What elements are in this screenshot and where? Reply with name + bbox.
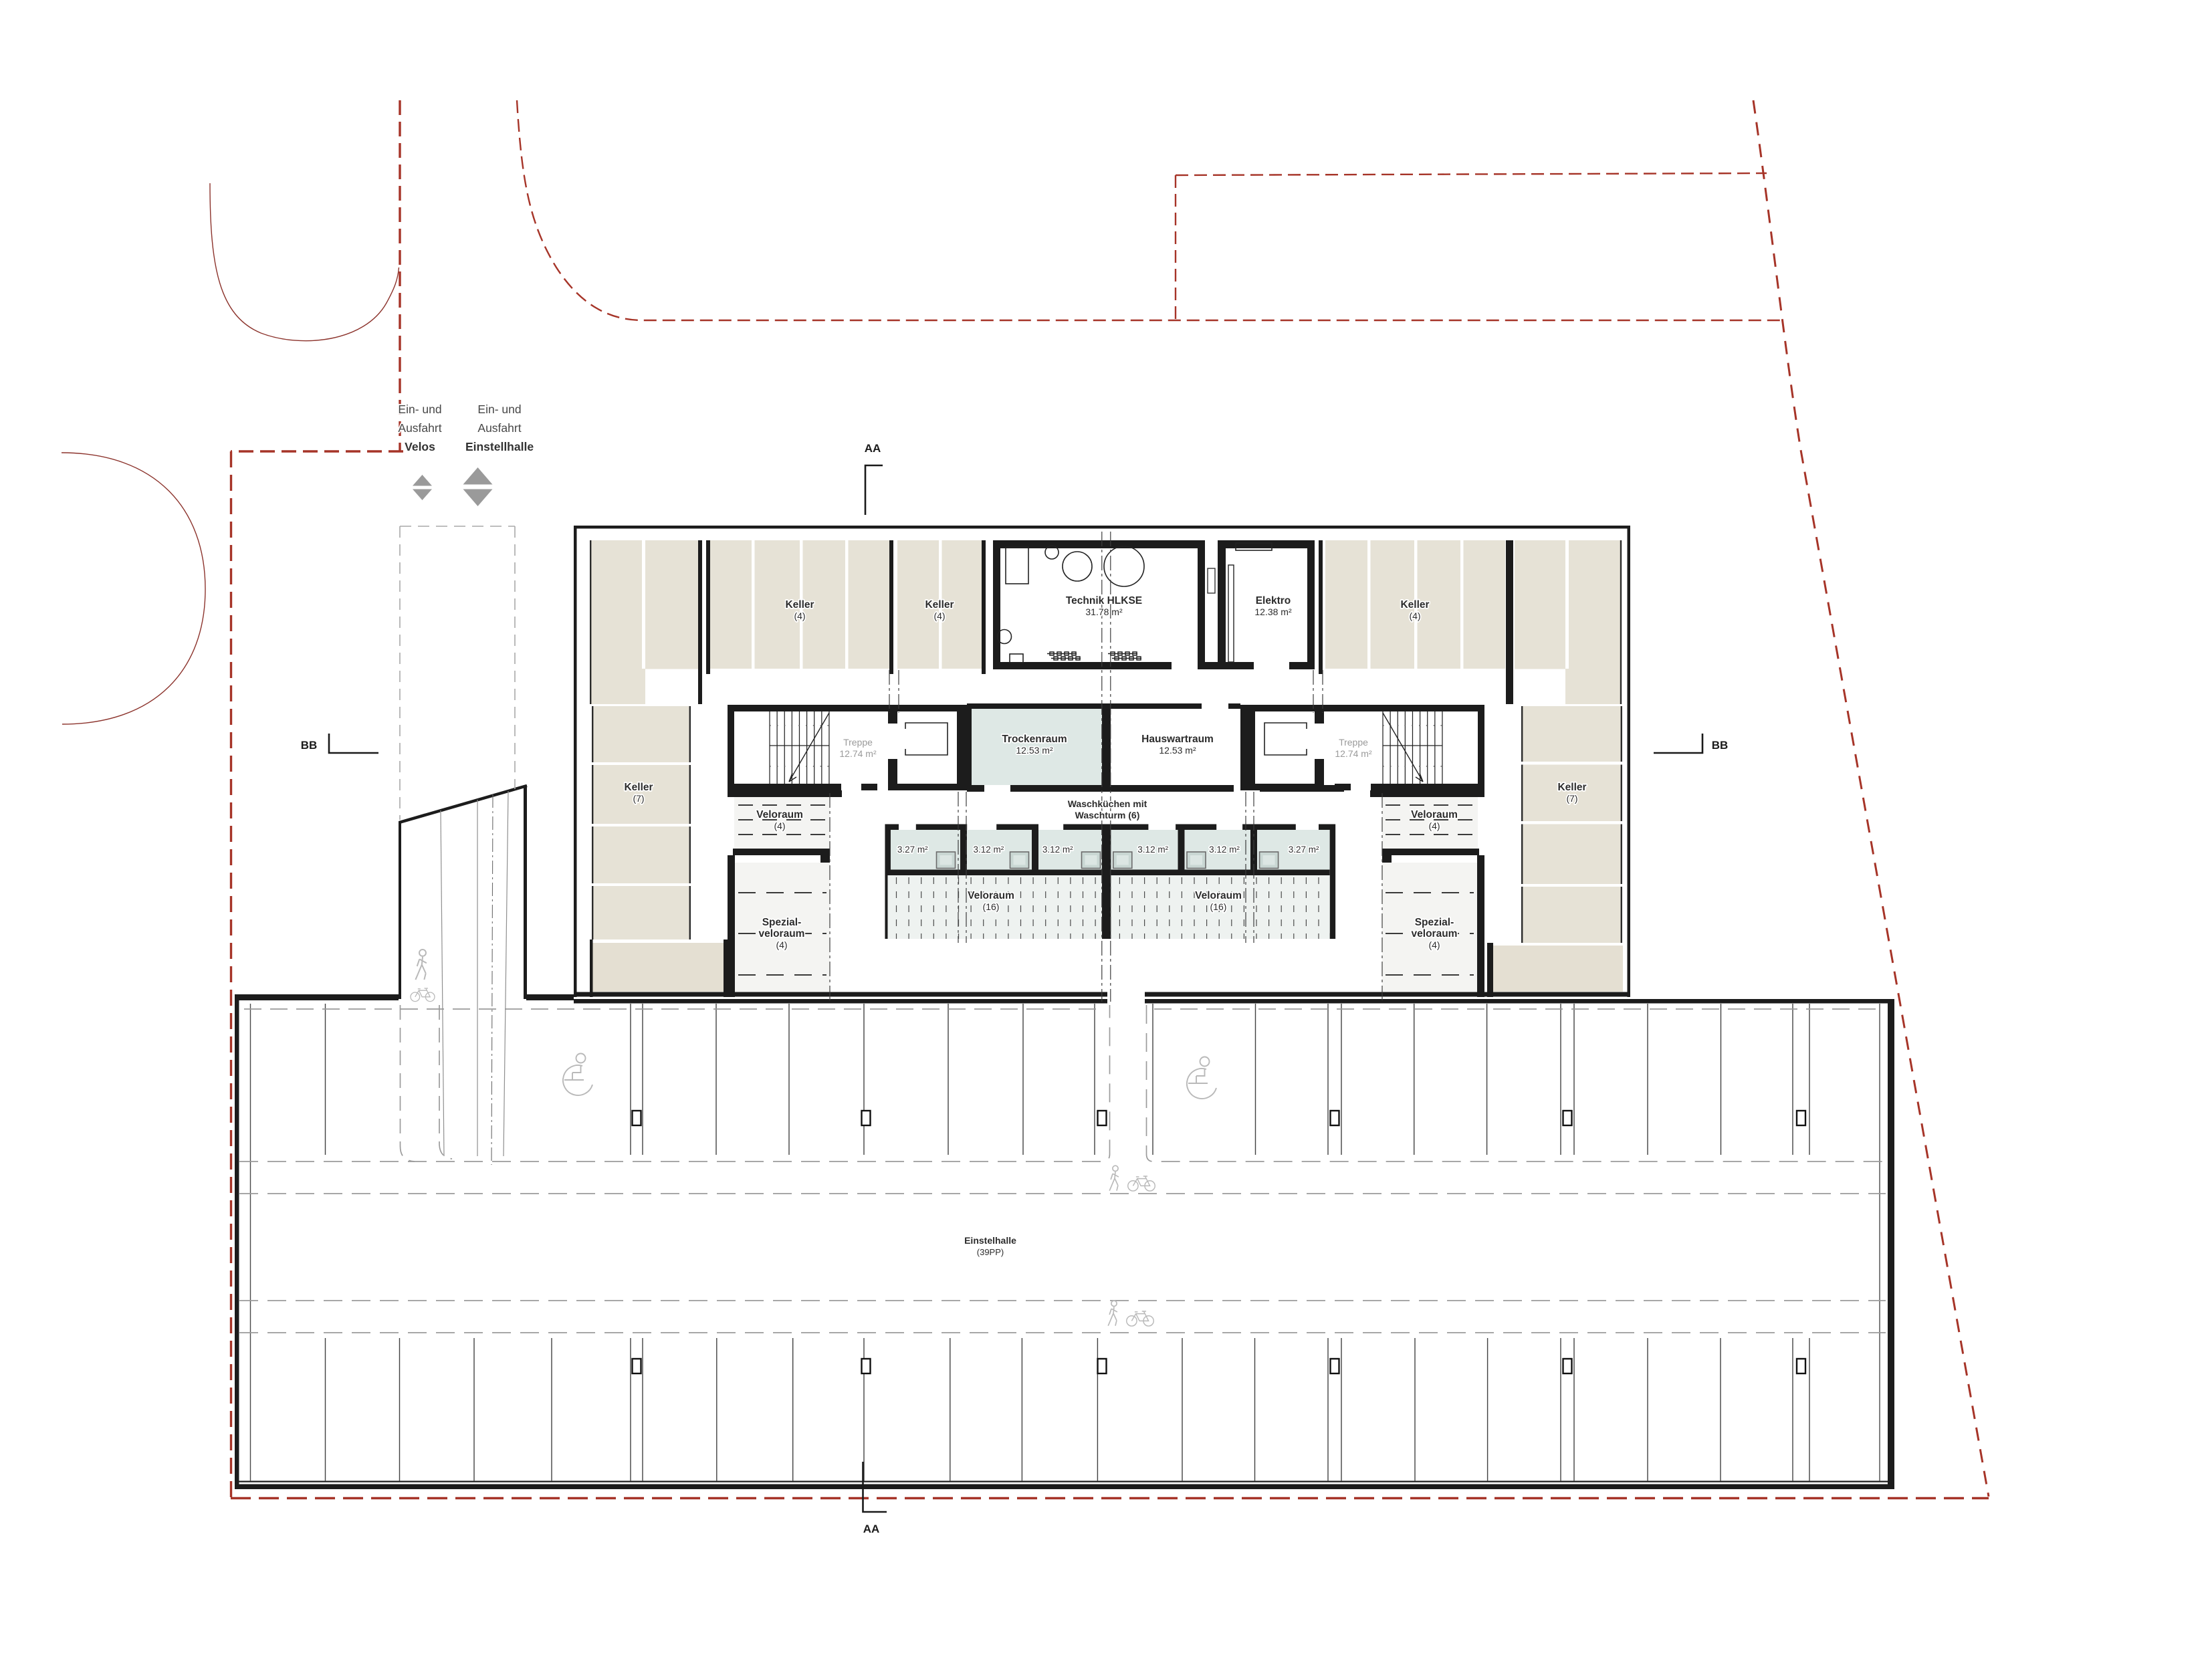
svg-text:(4): (4) — [1428, 939, 1440, 950]
svg-text:Ausfahrt: Ausfahrt — [398, 421, 441, 435]
svg-text:3.12 m²: 3.12 m² — [974, 845, 1004, 855]
svg-text:Veloraum: Veloraum — [756, 809, 803, 820]
svg-text:(4): (4) — [933, 611, 945, 621]
svg-text:Treppe: Treppe — [1339, 737, 1368, 748]
svg-text:Ein- und: Ein- und — [477, 403, 521, 416]
svg-text:Keller: Keller — [1557, 782, 1586, 793]
svg-text:AA: AA — [863, 1523, 880, 1535]
svg-text:3.27 m²: 3.27 m² — [1289, 845, 1319, 855]
svg-text:12.53 m²: 12.53 m² — [1159, 745, 1196, 756]
svg-text:Einstellhalle: Einstellhalle — [465, 440, 534, 453]
svg-text:Velos: Velos — [405, 440, 435, 453]
svg-text:BB: BB — [1712, 739, 1729, 752]
svg-text:3.12 m²: 3.12 m² — [1209, 845, 1240, 855]
svg-text:Waschküchen mit: Waschküchen mit — [1068, 798, 1147, 809]
svg-text:(4): (4) — [1428, 820, 1440, 831]
svg-text:3.12 m²: 3.12 m² — [1137, 845, 1168, 855]
svg-text:veloraum: veloraum — [1412, 928, 1458, 939]
svg-text:AA: AA — [865, 442, 881, 455]
svg-text:(4): (4) — [776, 939, 787, 950]
svg-text:3.12 m²: 3.12 m² — [1042, 845, 1073, 855]
svg-text:Treppe: Treppe — [843, 737, 873, 748]
svg-text:(4): (4) — [1409, 611, 1420, 621]
svg-text:12.38 m²: 12.38 m² — [1254, 606, 1292, 617]
svg-text:(16): (16) — [1210, 901, 1227, 912]
svg-text:Ausfahrt: Ausfahrt — [477, 421, 521, 435]
svg-text:Trockenraum: Trockenraum — [1002, 734, 1067, 745]
svg-text:Keller: Keller — [785, 599, 814, 611]
svg-text:(16): (16) — [983, 901, 1000, 912]
svg-text:(7): (7) — [1566, 793, 1577, 804]
svg-text:Keller: Keller — [925, 599, 954, 611]
svg-text:Ein- und: Ein- und — [398, 403, 441, 416]
svg-text:12.53 m²: 12.53 m² — [1016, 745, 1053, 756]
svg-text:Veloraum: Veloraum — [968, 890, 1014, 901]
svg-text:Keller: Keller — [624, 782, 653, 793]
svg-text:Veloraum: Veloraum — [1195, 890, 1242, 901]
svg-text:3.27 m²: 3.27 m² — [897, 845, 928, 855]
svg-text:Technik HLKSE: Technik HLKSE — [1066, 595, 1142, 606]
svg-text:Hauswartraum: Hauswartraum — [1141, 734, 1214, 745]
svg-text:31.78 m²: 31.78 m² — [1085, 606, 1123, 617]
svg-text:Waschturm (6): Waschturm (6) — [1075, 810, 1140, 820]
svg-text:Elektro: Elektro — [1256, 595, 1291, 606]
svg-text:Spezial-: Spezial- — [1415, 917, 1454, 928]
svg-text:BB: BB — [301, 739, 318, 752]
svg-text:Keller: Keller — [1400, 599, 1429, 611]
svg-text:(4): (4) — [794, 611, 805, 621]
svg-text:veloraum: veloraum — [759, 928, 805, 939]
svg-text:Veloraum: Veloraum — [1411, 809, 1458, 820]
svg-text:(39PP): (39PP) — [977, 1247, 1004, 1257]
svg-text:Einstelhalle: Einstelhalle — [964, 1235, 1016, 1246]
svg-text:12.74 m²: 12.74 m² — [839, 748, 877, 759]
svg-text:(4): (4) — [774, 820, 785, 831]
svg-text:(7): (7) — [633, 793, 644, 804]
svg-text:12.74 m²: 12.74 m² — [1335, 748, 1372, 759]
svg-text:Spezial-: Spezial- — [762, 917, 802, 928]
